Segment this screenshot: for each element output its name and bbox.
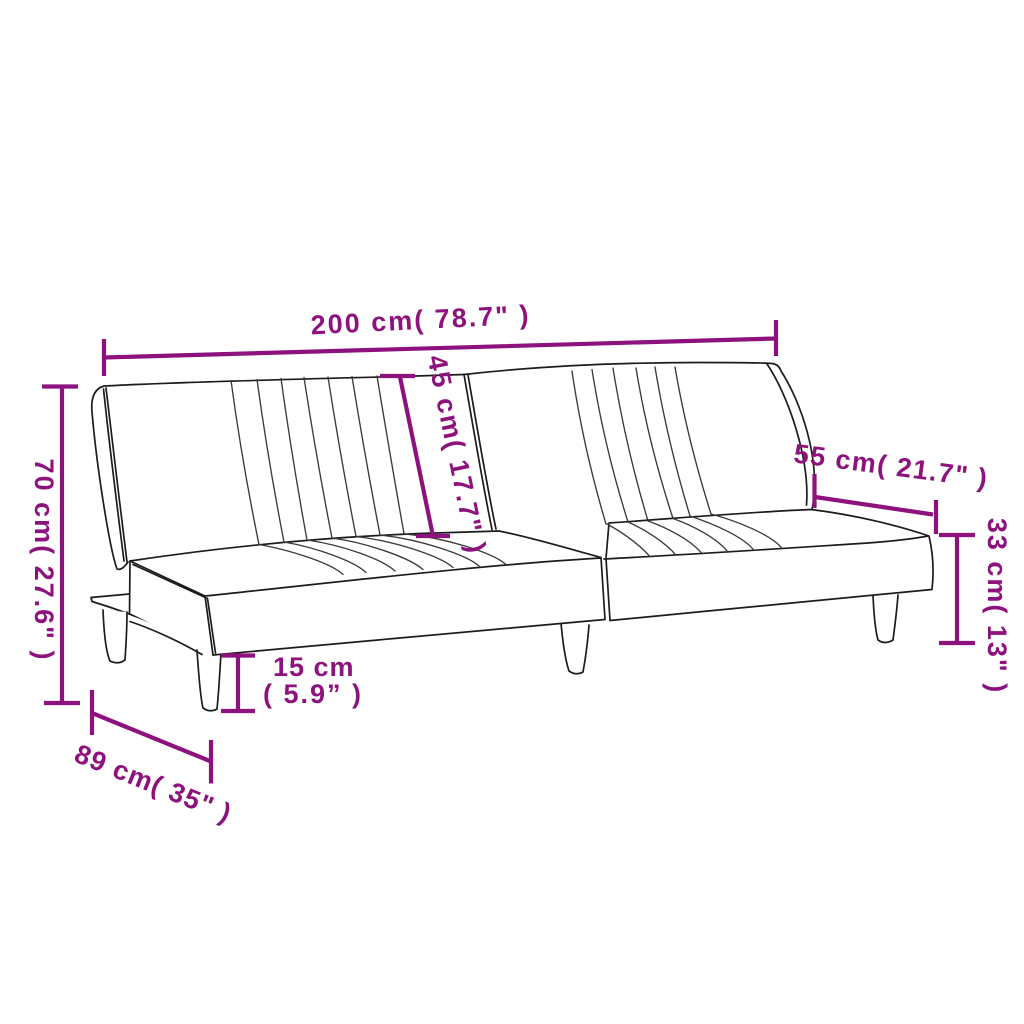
svg-text:70 cm( 27.6" ): 70 cm( 27.6" ) bbox=[29, 459, 59, 662]
svg-text:33 cm( 13" ): 33 cm( 13" ) bbox=[982, 518, 1012, 694]
svg-text:( 5.9” ): ( 5.9” ) bbox=[263, 679, 363, 709]
svg-text:15 cm: 15 cm bbox=[273, 652, 355, 682]
